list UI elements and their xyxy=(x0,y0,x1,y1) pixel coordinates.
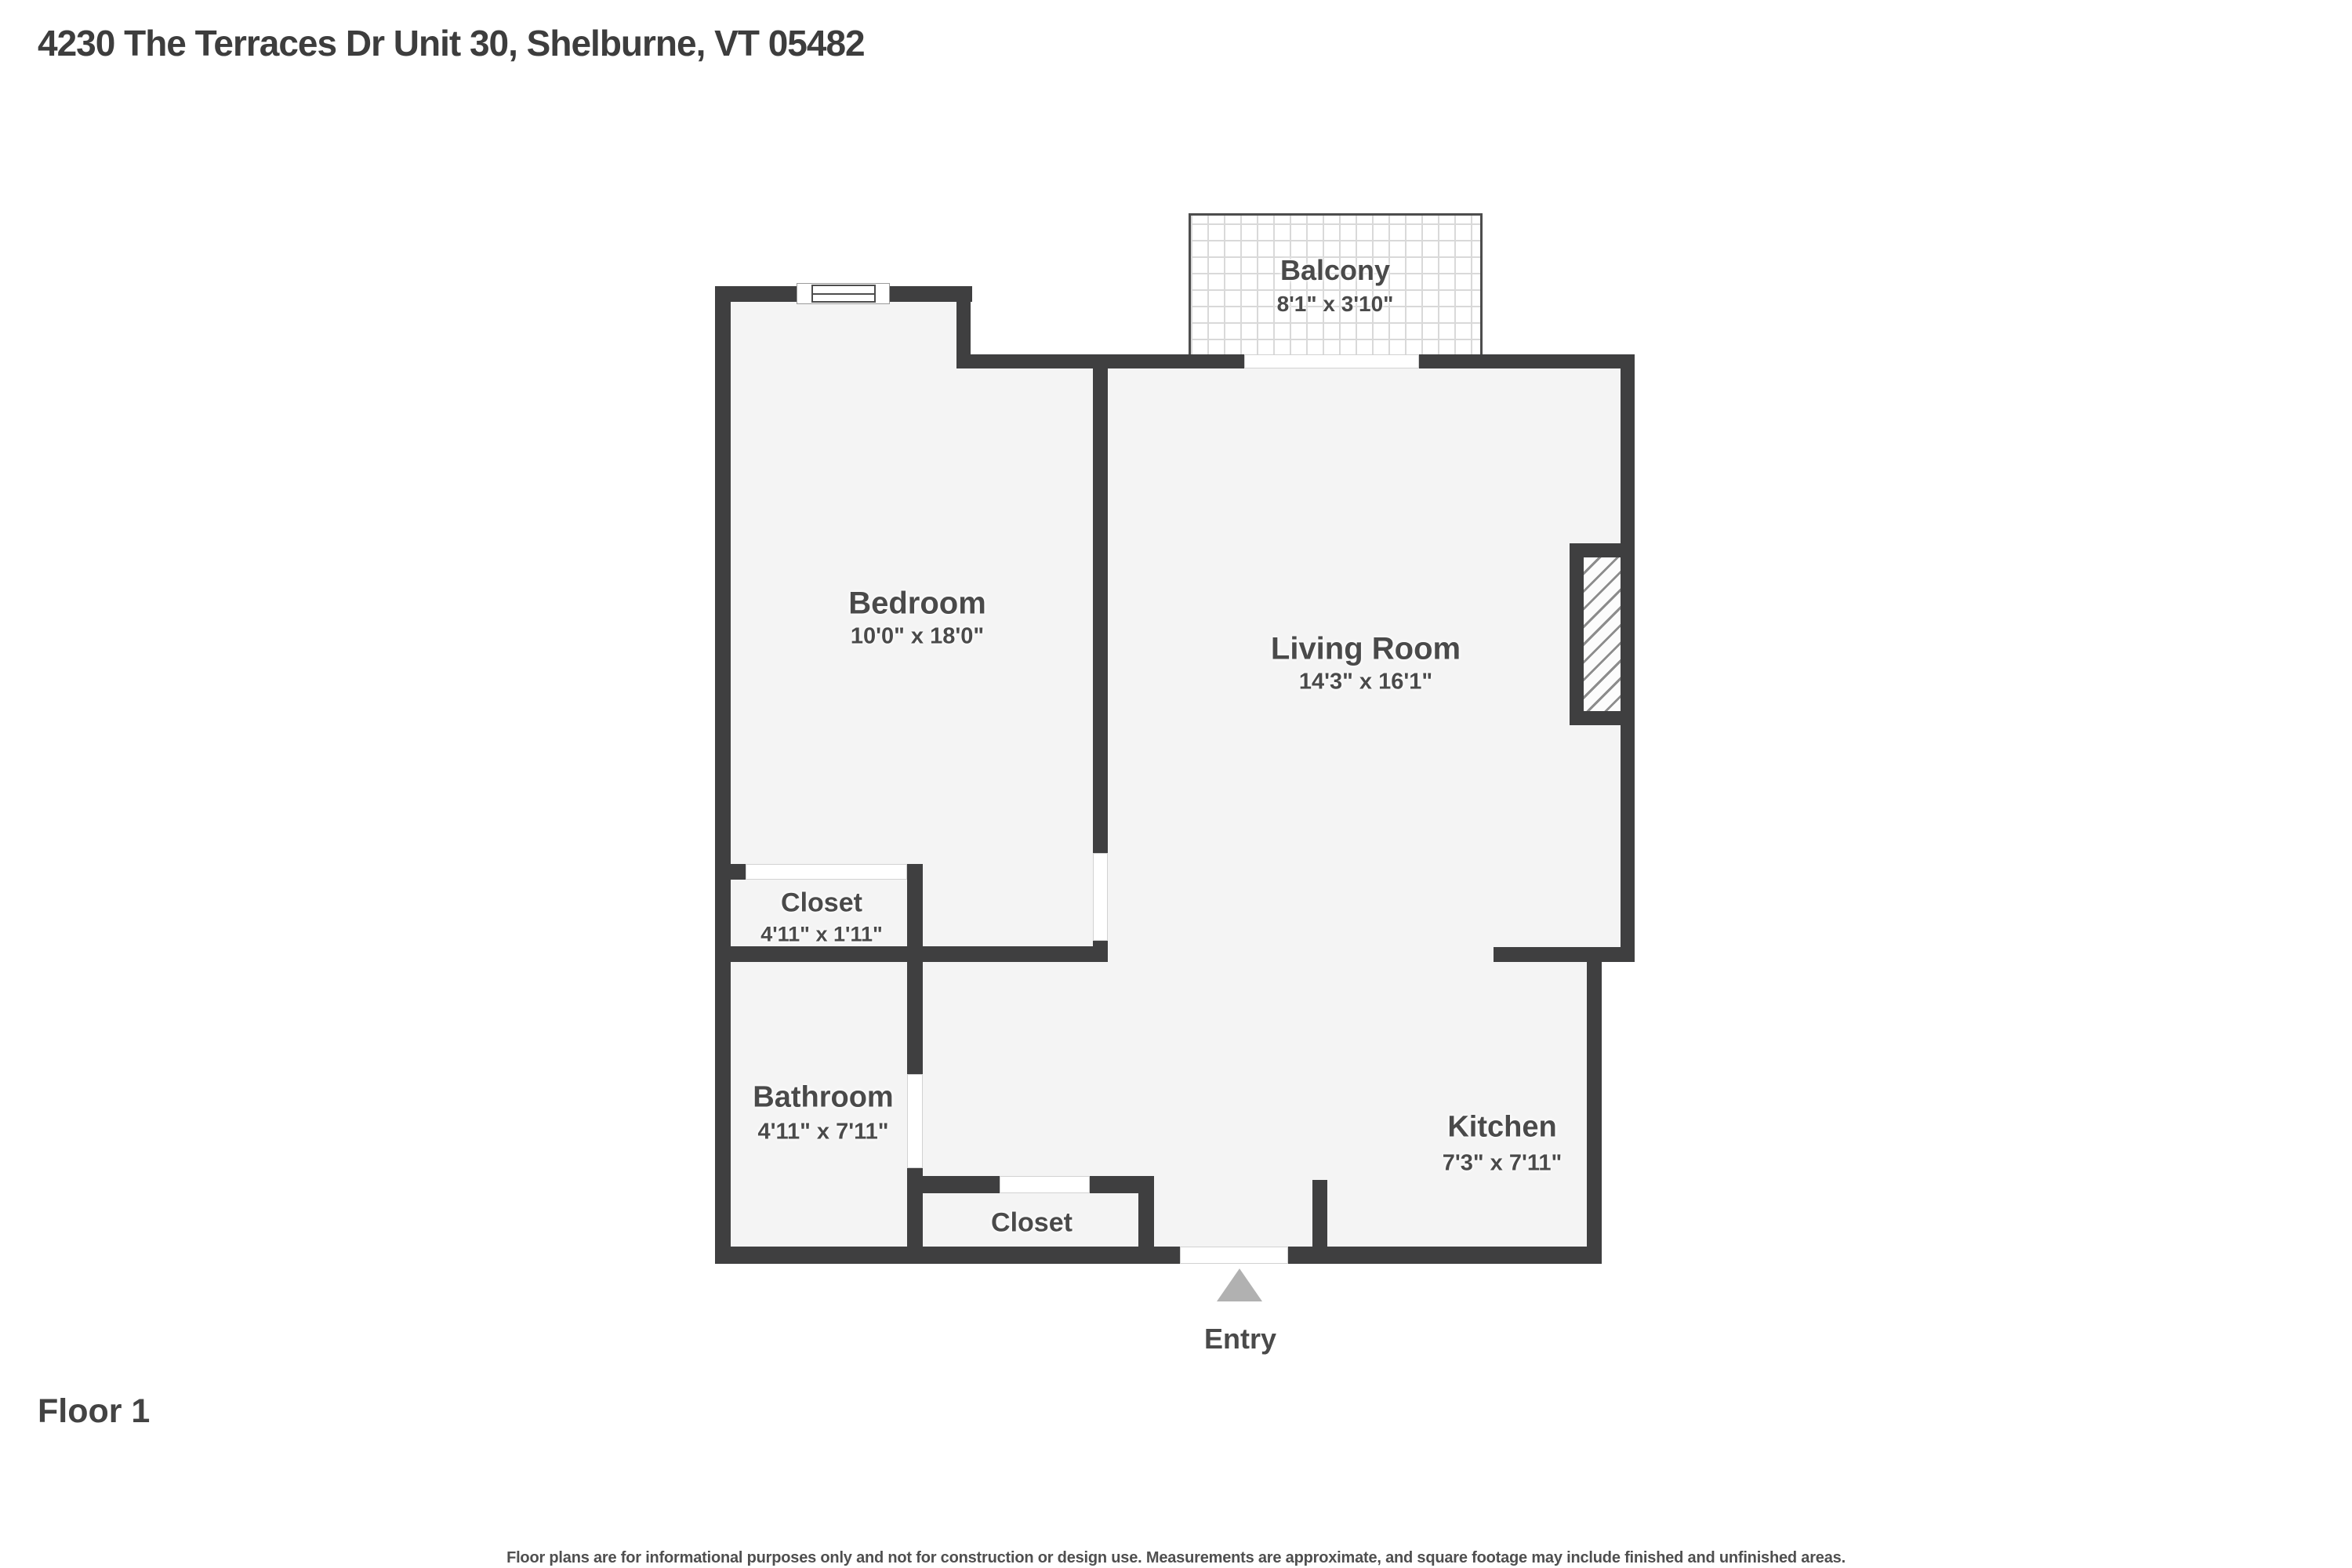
door-opening-hall-closet xyxy=(1000,1176,1090,1193)
room-label-balcony: Balcony xyxy=(1280,254,1390,287)
wall-right-exterior xyxy=(1621,354,1635,962)
wall-left-exterior xyxy=(715,286,731,1264)
door-opening-balcony xyxy=(1244,354,1419,368)
wall-bottom-left xyxy=(715,1247,1180,1264)
room-fill-bedroom-top xyxy=(731,302,956,368)
door-opening-entry xyxy=(1180,1247,1288,1264)
page-title: 4230 The Terraces Dr Unit 30, Shelburne,… xyxy=(38,22,865,64)
door-opening-bathroom xyxy=(907,1074,923,1168)
floor-label: Floor 1 xyxy=(38,1392,150,1431)
disclaimer-text: Floor plans are for informational purpos… xyxy=(0,1549,2352,1567)
wall-living-kitchen-stub xyxy=(1494,947,1635,962)
door-opening-bedroom xyxy=(1093,853,1108,941)
room-label-bedroom-closet: Closet xyxy=(781,888,862,919)
wall-hall-closet-right xyxy=(1138,1176,1154,1264)
window-pane xyxy=(811,285,876,303)
wall-fireplace-left xyxy=(1570,543,1584,725)
wall-kitchen-right xyxy=(1587,947,1602,1264)
room-dims-balcony: 8'1" x 3'10" xyxy=(1277,292,1394,317)
wall-bedroom-living-divider xyxy=(1093,354,1108,853)
entry-arrow-icon xyxy=(1217,1269,1262,1301)
room-label-bathroom: Bathroom xyxy=(753,1081,893,1115)
fireplace-hatch xyxy=(1584,557,1621,711)
room-dims-living-room: 14'3" x 16'1" xyxy=(1299,670,1432,695)
wall-bedroom-closet-cap xyxy=(715,864,746,880)
room-dims-bedroom: 10'0" x 18'0" xyxy=(851,624,984,650)
room-dims-kitchen: 7'3" x 7'11" xyxy=(1443,1151,1563,1177)
room-dims-bedroom-closet: 4'11" x 1'11" xyxy=(760,923,883,947)
wall-entry-stub xyxy=(1312,1180,1327,1258)
wall-hall-closet-top-left xyxy=(907,1176,1000,1193)
wall-living-top-right xyxy=(1419,354,1635,368)
door-opening-bedroom-closet xyxy=(746,864,907,880)
wall-bottom-right xyxy=(1288,1247,1602,1264)
room-dims-bathroom: 4'11" x 7'11" xyxy=(757,1120,888,1145)
bedroom-window-icon xyxy=(797,283,890,304)
room-label-living-room: Living Room xyxy=(1271,632,1461,667)
room-label-kitchen: Kitchen xyxy=(1447,1111,1556,1145)
entry-label: Entry xyxy=(1204,1323,1276,1356)
room-label-hall-closet: Closet xyxy=(991,1208,1073,1239)
floor-plan-page: 4230 The Terraces Dr Unit 30, Shelburne,… xyxy=(0,0,2352,1568)
wall-fireplace-bottom xyxy=(1570,711,1621,725)
room-label-bedroom: Bedroom xyxy=(848,586,986,622)
wall-bathroom-right-upper xyxy=(907,864,923,1074)
